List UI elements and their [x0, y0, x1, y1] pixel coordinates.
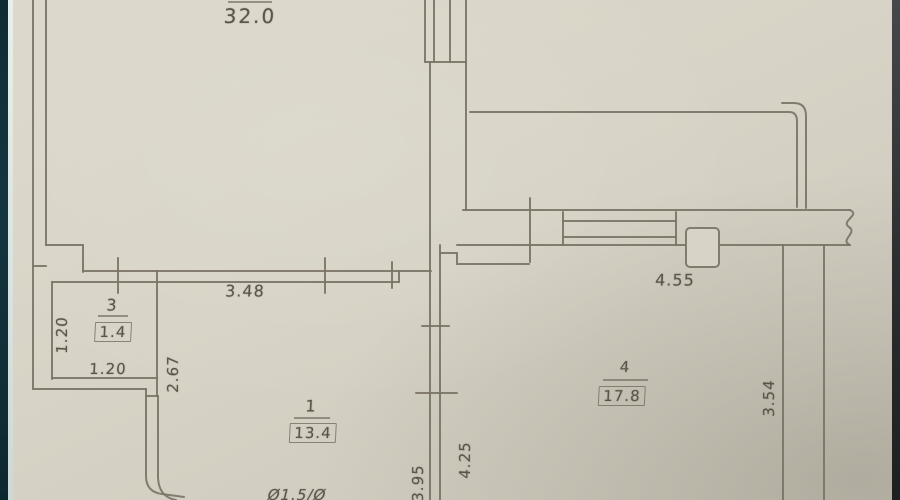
- dim-4-25: 4.25: [456, 441, 474, 479]
- dim-area-32: 32.0: [223, 4, 277, 28]
- dim-2-67: 2.67: [164, 355, 182, 393]
- photo-right-dark-edge: [892, 0, 900, 500]
- dim-4-55: 4.55: [655, 271, 696, 290]
- dim-1-20-horizontal: 1.20: [89, 360, 127, 378]
- room1-area-box: 13.4: [289, 423, 337, 443]
- room4-right-wall: [783, 245, 824, 500]
- column-box: [686, 228, 719, 267]
- dim-3-48: 3.48: [225, 282, 266, 301]
- duct-shaft-top: [425, 0, 466, 210]
- room4-area: 17.8: [598, 387, 646, 405]
- photo-left-light-edge: [8, 0, 13, 500]
- room3-number: 3: [106, 296, 118, 315]
- balcony-walls: [457, 103, 853, 262]
- center-wall: [416, 62, 529, 500]
- room4-number: 4: [619, 358, 630, 376]
- window-symbol: [563, 212, 676, 245]
- dim-3-95: 3.95: [409, 464, 427, 500]
- floorplan-photo: 32.0 3.48 3 1.4 1.20 1.20 2.67 1 13.4 Ø1…: [0, 0, 900, 500]
- photo-left-dark-edge: [0, 0, 8, 500]
- room3-area: 1.4: [94, 323, 132, 341]
- dim-1-20-vertical: 1.20: [53, 316, 71, 354]
- room1-area: 13.4: [289, 424, 337, 442]
- floorplan-lines: [0, 0, 900, 500]
- wall-break-squiggle: [846, 210, 853, 245]
- room1-number: 1: [305, 397, 317, 416]
- room3-area-box: 1.4: [94, 322, 132, 342]
- dim-3-54: 3.54: [760, 379, 778, 417]
- room4-area-box: 17.8: [598, 386, 646, 406]
- pipe-note: Ø1.5/Ø: [267, 486, 326, 500]
